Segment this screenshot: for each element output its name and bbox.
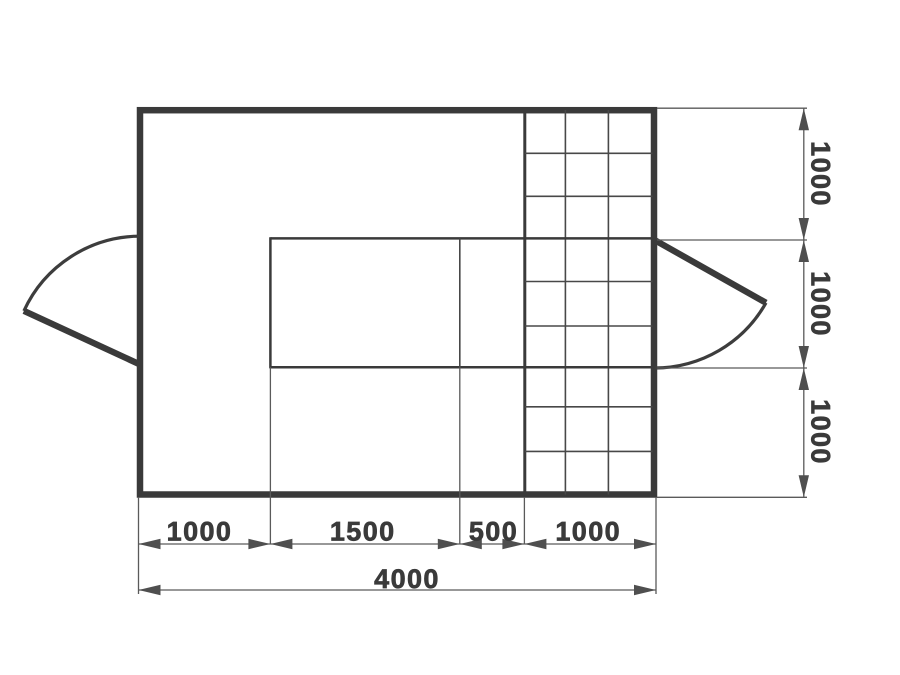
svg-text:1000: 1000 xyxy=(555,517,621,547)
svg-text:1500: 1500 xyxy=(330,517,396,547)
svg-text:1000: 1000 xyxy=(167,517,233,547)
svg-text:4000: 4000 xyxy=(374,564,440,594)
svg-text:500: 500 xyxy=(469,517,518,547)
svg-text:1000: 1000 xyxy=(806,271,836,337)
svg-text:1000: 1000 xyxy=(806,399,836,465)
svg-text:1000: 1000 xyxy=(806,141,836,207)
